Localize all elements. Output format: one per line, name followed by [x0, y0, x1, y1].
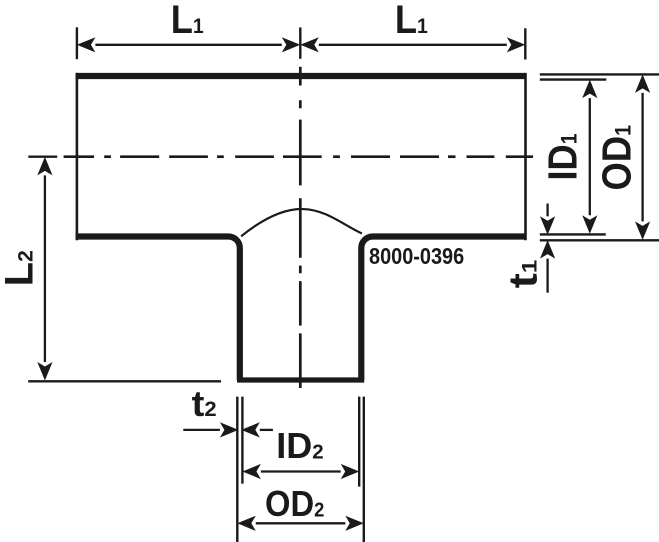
svg-text:OD1: OD1 [594, 125, 640, 191]
svg-text:8000-0396: 8000-0396 [369, 243, 464, 269]
svg-text:L1: L1 [395, 0, 428, 42]
svg-text:L1: L1 [171, 0, 204, 42]
svg-text:t2: t2 [192, 383, 217, 424]
svg-text:L2: L2 [0, 250, 41, 286]
svg-text:OD2: OD2 [265, 483, 324, 524]
svg-text:t1: t1 [502, 259, 546, 288]
svg-text:ID2: ID2 [276, 425, 323, 466]
svg-text:ID1: ID1 [540, 134, 586, 181]
